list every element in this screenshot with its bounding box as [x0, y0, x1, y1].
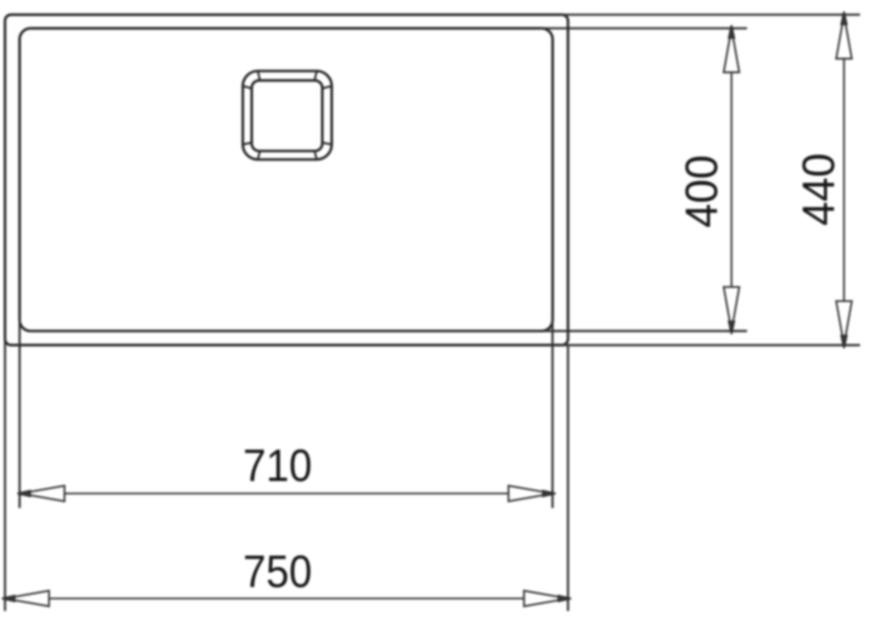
- svg-text:710: 710: [243, 441, 312, 491]
- svg-text:400: 400: [677, 155, 727, 228]
- svg-text:750: 750: [243, 547, 312, 597]
- svg-text:440: 440: [794, 153, 844, 226]
